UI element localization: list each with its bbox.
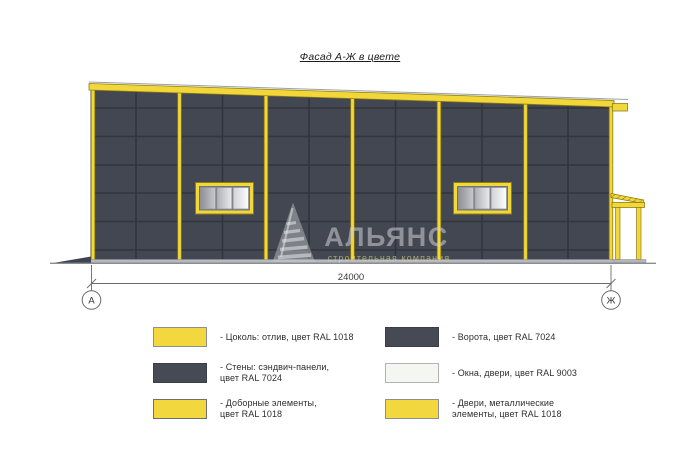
dimension-value: 24000 [338, 272, 364, 283]
legend-column-left: - Цоколь: отлив, цвет RAL 1018 - Стены: … [153, 319, 393, 427]
watermark-tagline: строительная компания [328, 253, 451, 263]
legend-item-walls: - Стены: сэндвич-панели, цвет RAL 7024 [153, 355, 393, 391]
legend-item-doors: - Двери, металлические элементы, цвет RA… [385, 391, 625, 427]
legend-label-gates: - Ворота, цвет RAL 7024 [452, 332, 556, 343]
roof-trim-box [613, 104, 628, 112]
legend-swatch-gates [385, 327, 439, 347]
axis-label-right: Ж [607, 296, 616, 307]
window-1 [196, 183, 254, 215]
legend-label-walls: - Стены: сэндвич-панели, цвет RAL 7024 [220, 362, 329, 384]
legend-label-doors: - Двери, металлические элементы, цвет RA… [452, 398, 562, 420]
canopy-base [611, 260, 646, 263]
watermark-company-name: АЛЬЯНС [324, 222, 449, 252]
legend-item-gates: - Ворота, цвет RAL 7024 [385, 319, 625, 355]
axis-label-left: А [88, 296, 95, 307]
legend-label-plinth: - Цоколь: отлив, цвет RAL 1018 [220, 332, 354, 343]
legend-swatch-trim [153, 399, 207, 419]
legend-item-trim: - Доборные элементы, цвет RAL 1018 [153, 391, 393, 427]
legend-label-windows: - Окна, двери, цвет RAL 9003 [452, 368, 577, 379]
canopy-post-right [637, 208, 642, 260]
legend-swatch-plinth [153, 327, 207, 347]
terrain-wedge [53, 257, 91, 264]
canopy-post-left [616, 208, 621, 260]
legend-item-plinth: - Цоколь: отлив, цвет RAL 1018 [153, 319, 393, 355]
canopy-beam [612, 203, 645, 208]
legend-swatch-walls [153, 363, 207, 383]
window-2 [454, 183, 512, 215]
legend-swatch-doors [385, 399, 439, 419]
legend-swatch-windows [385, 363, 439, 383]
legend-item-windows: - Окна, двери, цвет RAL 9003 [385, 355, 625, 391]
legend-label-trim: - Доборные элементы, цвет RAL 1018 [220, 398, 317, 420]
legend-column-right: - Ворота, цвет RAL 7024 - Окна, двери, ц… [385, 319, 625, 427]
